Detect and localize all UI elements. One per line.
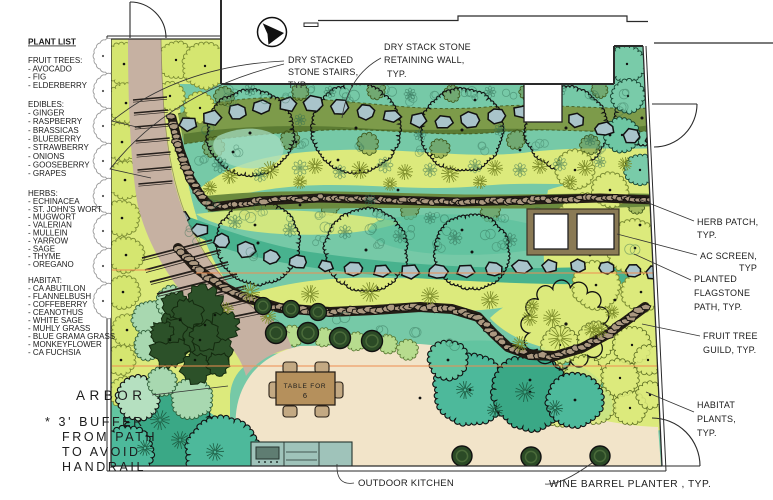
svg-text:RETAINING WALL,: RETAINING WALL, — [384, 55, 465, 65]
svg-text:- GOOSEBERRY: - GOOSEBERRY — [28, 161, 90, 170]
svg-text:- STRAWBERRY: - STRAWBERRY — [28, 143, 90, 152]
svg-text:PLANT LIST: PLANT LIST — [28, 37, 76, 47]
svg-text:FLAGSTONE: FLAGSTONE — [694, 288, 750, 298]
svg-text:- ELDERBERRY: - ELDERBERRY — [28, 81, 88, 90]
svg-text:* 3' BUFFER: * 3' BUFFER — [45, 415, 145, 429]
svg-text:TYP.: TYP. — [288, 80, 308, 90]
svg-text:HERB PATCH,: HERB PATCH, — [697, 217, 758, 227]
svg-text:PLANTED: PLANTED — [694, 274, 737, 284]
svg-text:DRY STACKED: DRY STACKED — [288, 55, 354, 65]
svg-text:HABITAT: HABITAT — [697, 400, 735, 410]
svg-text:WINE BARREL PLANTER , TYP.: WINE BARREL PLANTER , TYP. — [549, 479, 711, 490]
svg-text:PATH, TYP.: PATH, TYP. — [694, 302, 742, 312]
svg-text:STONE STAIRS,: STONE STAIRS, — [288, 67, 358, 77]
svg-text:FRUIT TREE: FRUIT TREE — [703, 331, 758, 341]
svg-text:GUILD, TYP.: GUILD, TYP. — [703, 345, 756, 355]
svg-text:- CA FUCHSIA: - CA FUCHSIA — [28, 348, 82, 357]
svg-text:- BLUEBERRY: - BLUEBERRY — [28, 135, 82, 144]
svg-text:- GRAPES: - GRAPES — [28, 169, 66, 178]
svg-text:6: 6 — [303, 391, 307, 400]
svg-text:TYP.: TYP. — [697, 428, 717, 438]
svg-text:TO AVOID: TO AVOID — [62, 445, 141, 459]
svg-text:OUTDOOR KITCHEN: OUTDOOR KITCHEN — [358, 478, 454, 489]
svg-text:TYP.: TYP. — [697, 230, 717, 240]
svg-text:AC SCREEN,: AC SCREEN, — [700, 251, 757, 261]
svg-text:DRY STACK STONE: DRY STACK STONE — [384, 42, 471, 52]
svg-text:PLANTS,: PLANTS, — [697, 414, 736, 424]
svg-text:- RASPBERRY: - RASPBERRY — [28, 117, 83, 126]
svg-text:TYP.: TYP. — [387, 69, 407, 79]
svg-text:TABLE FOR: TABLE FOR — [284, 383, 327, 390]
svg-text:FROM PATH: FROM PATH — [62, 430, 157, 444]
svg-text:HANDRAIL: HANDRAIL — [62, 460, 146, 474]
svg-text:TYP: TYP — [739, 263, 757, 273]
svg-text:EDIBLES:: EDIBLES: — [28, 100, 64, 109]
svg-text:- OREGANO: - OREGANO — [28, 260, 74, 269]
svg-text:ARBOR: ARBOR — [76, 388, 147, 403]
